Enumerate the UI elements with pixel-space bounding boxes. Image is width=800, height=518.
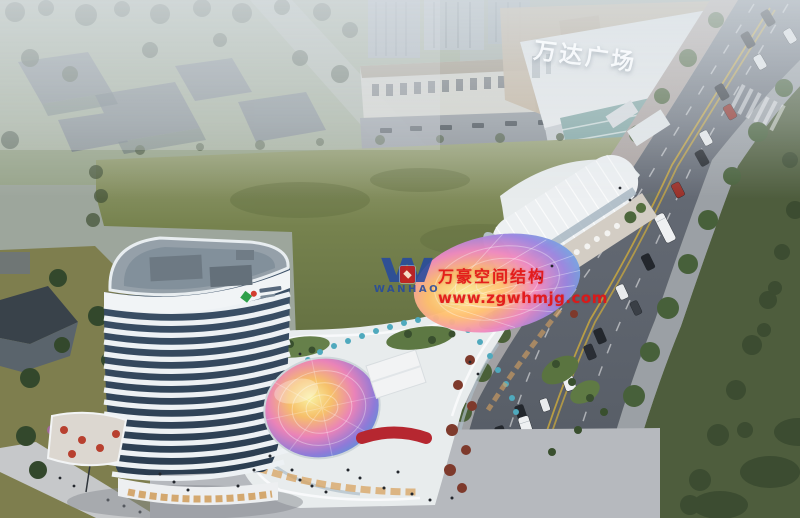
led-screen-band xyxy=(362,433,426,439)
watermark-website: www.zgwhmjg.com xyxy=(438,289,608,307)
aerial-rendering: 万达广场 W WANHAO 万豪空间结构 www.zgwhmjg.com xyxy=(0,0,800,518)
watermark-company-name: 万豪空间结构 xyxy=(438,263,608,287)
watermark: W WANHAO 万豪空间结构 www.zgwhmjg.com xyxy=(360,252,595,314)
west-annex xyxy=(48,413,126,465)
watermark-text: 万豪空间结构 www.zgwhmjg.com xyxy=(438,263,608,307)
watermark-logo: W WANHAO xyxy=(370,255,444,295)
watermark-logo-badge xyxy=(400,266,415,283)
haze-northwest xyxy=(0,0,440,150)
